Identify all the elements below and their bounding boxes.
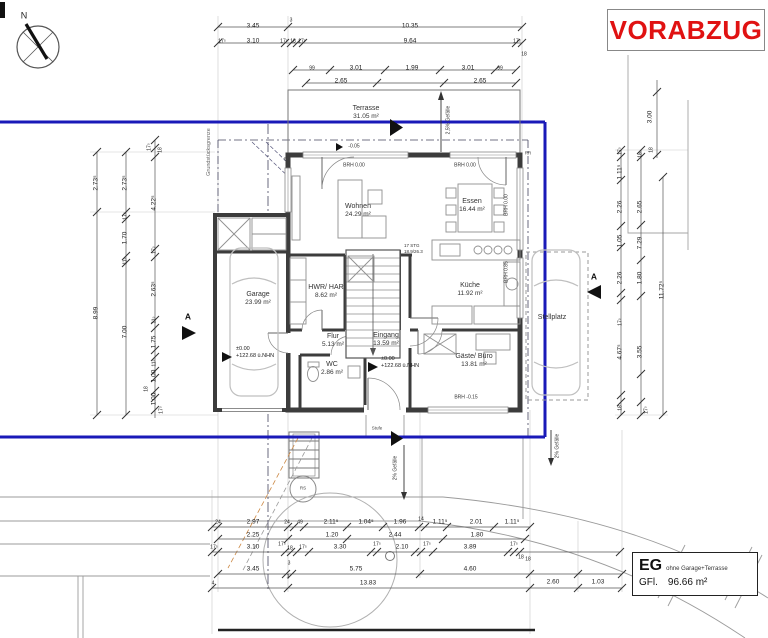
exterior-steps [289,432,319,478]
dimension-label: 3 [288,561,291,566]
dimension-label: 11⁵ [152,359,157,366]
dimension-label: 17⁵ [123,212,128,220]
room-label-garage: Garage 23.99 m² [245,291,271,307]
dimension-label: 17⁵ [147,143,152,151]
dimension-label: 17⁵ [159,406,164,414]
room-label-terrasse: Terrasse 31.05 m² [353,105,380,121]
stairs-label: 17 STG 18.9/26.3 [404,243,423,254]
dimension-label: 1.00 [152,370,159,383]
floor-note: ohne Garage+Terrasse [666,566,728,572]
dimension-label: 3.45 [247,24,260,31]
dimension-label: 1.96 [394,520,407,527]
dimension-label: 18 [521,52,527,57]
tree-circle [263,493,397,627]
sheet-corner-mark [0,2,5,18]
dimension-label: 2.26 [618,272,625,285]
gfl-value: 96.66 m² [668,577,707,588]
dimension-label: 3.10 [247,545,260,552]
rr-mark-right: RR [525,152,532,157]
level-eingang: ±0.00 +122.68 ü.NHN [381,356,419,370]
dimension-label: 17⁵ [513,39,521,44]
room-label-kueche: Küche 11.92 m² [457,282,482,298]
dimension-label: 11⁵ [152,316,157,323]
floor-plan-sheet: VORABZUG EG ohne Garage+Terrasse GFl. 96… [0,0,768,638]
dimension-label: 24 [215,520,221,525]
dimension-label: 17⁵ [218,39,226,44]
dimension-label: 3.55 [638,346,645,359]
brh-right-kueche: BRH 0.85 [504,261,509,283]
slope-label-right: 2% Gefälle [555,434,560,458]
section-marker-right [587,285,601,299]
dimension-label: 17⁵ [298,39,306,44]
stufe-label: Stufe [372,427,383,432]
section-label-right: A [591,273,597,282]
dimension-label: 1.70 [123,232,130,245]
dimension-label: 13.83 [360,581,376,588]
dimension-label: 3.00 [648,111,655,124]
dimension-label: 4.67⁵ [618,344,625,359]
stellplatz-car [532,250,580,395]
dimension-label: 18 [618,405,623,411]
dimension-label: 18 [518,555,524,560]
dimension-label: 1.99 [406,66,419,73]
dimension-label: 3.30 [334,545,347,552]
dimension-label: 4.60 [464,567,477,574]
dimension-label: 7.00 [123,326,130,339]
dimension-label: 2.97 [247,520,260,527]
dimension-label: 3 [287,575,290,580]
dimension-label: 1.00 [152,393,159,406]
dimension-label: 2.63⁵ [152,281,159,296]
stellplatz-outline [526,252,588,400]
dimension-label: 14 [418,517,424,522]
dimension-label: 17⁵ [152,246,157,254]
dimension-label: 1.11⁵ [505,520,520,527]
dimension-label: 17⁵ [644,406,649,414]
vorabzug-text: VORABZUG [610,15,763,46]
dimension-label: 2.73⁵ [94,175,101,190]
dimension-label: 1.75 [152,336,159,349]
level-garage: ±0.00 +122.68 ü.NHN [236,346,274,360]
dimension-label: 2.11⁵ [324,520,339,527]
dimension-label: 18 [290,39,296,44]
room-label-eingang: Eingang 13.59 m² [373,332,399,348]
dimension-label: 99 [309,66,315,71]
floor-legend-box: EG ohne Garage+Terrasse GFl. 96.66 m² [632,552,758,596]
compass-north-label: N [21,11,28,20]
gfl-label: GFl. [639,577,658,588]
room-label-flur: Flur 5.13 m² [322,333,344,349]
dimension-label: 18 [649,147,654,153]
dimension-label: 18 [638,152,643,158]
vorabzug-stamp: VORABZUG [607,9,765,51]
dimension-label: 11.72⁵ [660,281,667,299]
dimension-label: 3.01 [350,66,363,73]
dimension-label: 5.75 [350,567,363,574]
rr-mark-left: RR [284,158,291,163]
dimension-label: 2.65 [335,79,348,86]
brh-top-right: BRH 0.00 [454,163,476,168]
dimension-label: 2.10 [396,545,409,552]
rs-mark: RS [300,487,306,492]
dimension-label: 2.73⁵ [123,175,130,190]
dimension-label: 1.04⁵ [358,520,373,527]
brh-right-essen: BRH 0.00 [504,194,509,216]
dimension-label: 1.11⁵ [618,165,625,180]
dimension-label: 8.99 [94,307,101,320]
dimension-label: 2.44 [389,533,402,540]
dimension-label: 18 [287,546,293,551]
dimension-label: 3.89 [464,545,477,552]
dimension-label: 3.01 [462,66,475,73]
dimension-label: 49 [297,520,303,525]
dimension-label: 18 [525,557,531,562]
dimension-label: 17⁵ [423,542,431,547]
dimension-label: 17⁵ [618,147,623,155]
dimension-label: 1.20 [326,533,339,540]
dimension-label: 17⁵ [618,318,623,326]
dimension-label: 17⁵ [373,542,381,547]
level-terrasse: -0.05 [348,144,359,149]
north-compass [17,24,59,68]
section-marker-left [182,326,196,340]
dimension-label: 17⁵ [510,542,518,547]
room-label-essen: Essen 16.44 m² [459,198,485,214]
room-label-gaeste: Gäste/ Büro 13.81 m² [455,353,492,369]
dimension-label: 1.03 [592,580,605,587]
dimension-label: 7.29 [638,237,645,250]
dimension-label: 1.11⁵ [433,520,448,527]
dimension-label: 17⁵ [278,542,286,547]
level-marker-terrasse [336,143,343,151]
dimension-label: 17⁵ [280,39,288,44]
room-label-stellplatz: Stellplatz [538,314,566,322]
room-label-wohnen: Wohnen 24.29 m² [345,203,371,219]
room-label-wc: WC 2.86 m² [321,361,343,377]
dimension-label: 17⁵ [210,545,218,550]
dimension-label: 99 [497,66,503,71]
dimension-label: 1.80 [471,533,484,540]
dimension-label: 3.10 [247,39,260,46]
dimension-label: 18 [158,147,163,153]
plan-linework [0,0,768,638]
boundary-label: Grundstücksgrenze [207,128,213,176]
dimension-label: 17⁵ [299,545,307,550]
dimension-label: 3.45 [247,567,260,574]
dimension-label: 4.22⁵ [152,195,159,210]
dimension-label: 10.35 [402,24,418,31]
room-label-hwr: HWR/ HAR 8.62 m² [308,284,343,300]
dimension-label: 11⁵ [123,257,128,264]
dimension-label: 24 [284,520,290,525]
dimension-label: 2.01 [470,520,483,527]
floor-label: EG [639,557,662,575]
dimension-label: 3 [290,18,293,23]
dimension-label: 1.80 [638,272,645,285]
dimension-label: 1.05 [618,235,625,248]
dimension-label: 2.65 [474,79,487,86]
section-label-left: A [185,313,191,322]
boundary-marker-bottom [391,431,403,446]
brh-top-left: BRH 0.00 [343,163,365,168]
post-circle [386,552,395,561]
dimension-label: 2.60 [547,580,560,587]
slope-label-bottom: 2% Gefälle [393,456,398,480]
dimension-label: 2.26 [618,201,625,214]
dimension-label: 4 [212,581,215,586]
slope-label-top: 2,5% Gefälle [446,106,451,135]
dimension-label: 2.65 [638,201,645,214]
dimension-label: 9.64 [404,39,417,46]
brh-gaeste: BRH -0.15 [454,395,477,400]
dimension-label: 18 [144,386,149,392]
dimension-label: 2.25 [247,533,260,540]
